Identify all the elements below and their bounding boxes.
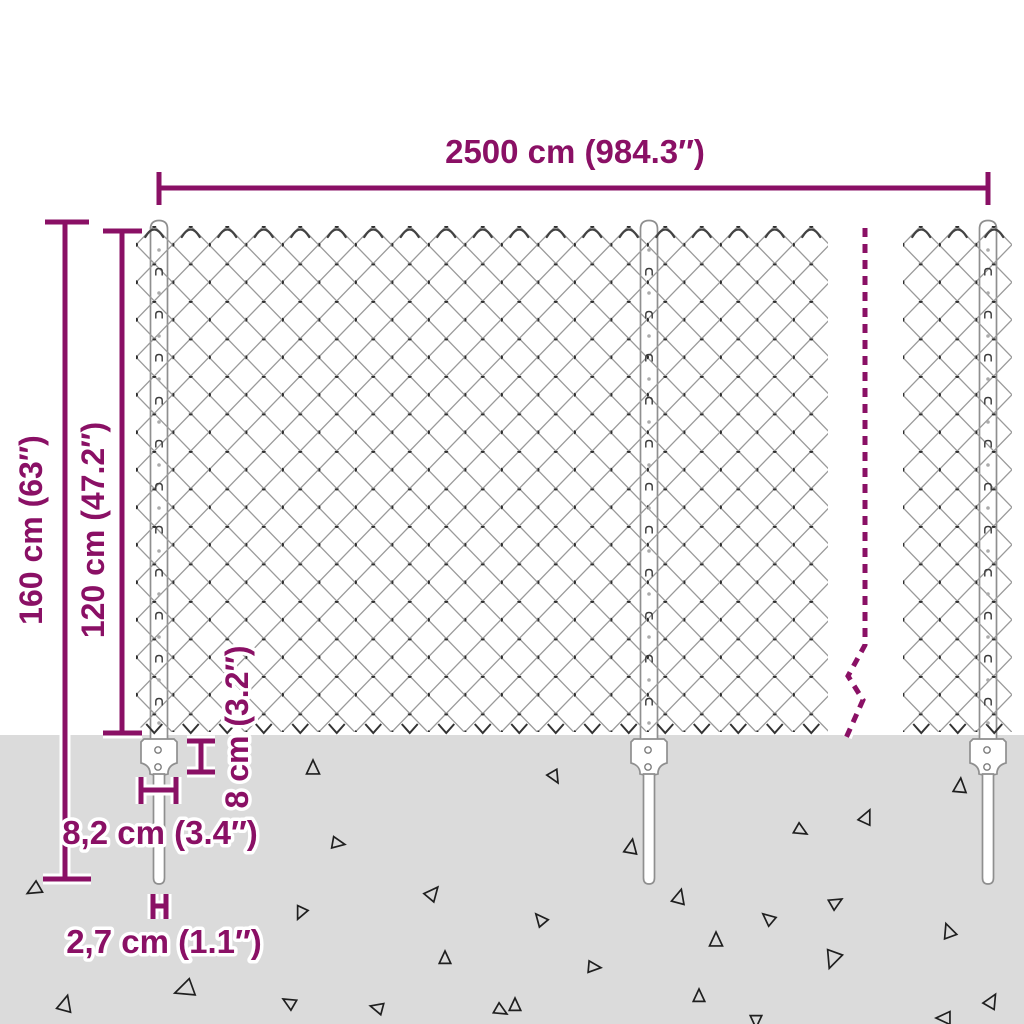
bracket-screw-hole — [645, 764, 651, 770]
total-height-dimension-label: 160 cm (63″) — [13, 435, 49, 625]
post-pin — [157, 678, 161, 682]
width-dimension-label: 2500 cm (984.3″) — [445, 133, 705, 170]
post-pin — [157, 334, 161, 338]
bracket-screw-hole — [155, 747, 161, 753]
post-pin — [986, 463, 990, 467]
post-pin — [647, 420, 651, 424]
post-pin — [986, 592, 990, 596]
bracket-screw-hole — [645, 747, 651, 753]
post-pin — [986, 678, 990, 682]
post-pin — [157, 549, 161, 553]
bracket-screw-hole — [984, 764, 990, 770]
post-pin — [157, 420, 161, 424]
post-pin — [157, 635, 161, 639]
post-pin — [647, 334, 651, 338]
diagram-scene: 2500 cm (984.3″) 160 cm (63″) 120 cm (47… — [0, 0, 1024, 1024]
post-pin — [647, 635, 651, 639]
post-pin — [986, 549, 990, 553]
post-pin — [157, 506, 161, 510]
post-pin — [647, 549, 651, 553]
chain-link-mesh — [136, 226, 1012, 733]
post-pin — [986, 334, 990, 338]
post-pin — [157, 592, 161, 596]
post-pin — [986, 248, 990, 252]
mesh-section-right — [903, 226, 1012, 732]
post-pin — [157, 463, 161, 467]
bracket-screw-hole — [984, 747, 990, 753]
anchor-height-dimension-label: 8 cm (3.2″) — [219, 646, 255, 809]
post-pin — [986, 506, 990, 510]
post-pin — [647, 463, 651, 467]
post-pin — [647, 506, 651, 510]
post-pin — [647, 678, 651, 682]
post-pin — [647, 291, 651, 295]
post-pin — [647, 248, 651, 252]
post-pin — [647, 377, 651, 381]
post-pin — [647, 721, 651, 725]
post-pin — [986, 377, 990, 381]
fence-dimension-diagram: 2500 cm (984.3″) 160 cm (63″) 120 cm (47… — [0, 0, 1024, 1024]
post-pin — [647, 592, 651, 596]
post-pin — [986, 420, 990, 424]
post-pin — [157, 291, 161, 295]
post-diameter-dimension-label: 2,7 cm (1.1″) — [66, 923, 262, 960]
post-pin — [986, 291, 990, 295]
mesh-height-dimension-label: 120 cm (47.2″) — [75, 422, 111, 638]
post-pin — [157, 721, 161, 725]
post-ground-spike — [644, 774, 655, 884]
post-pin — [157, 377, 161, 381]
post-ground-spike — [983, 774, 994, 884]
width-dimension-line — [159, 172, 988, 205]
bracket-screw-hole — [155, 764, 161, 770]
anchor-width-dimension-label: 8,2 cm (3.4″) — [62, 814, 258, 851]
post-pin — [157, 248, 161, 252]
post-pin — [986, 635, 990, 639]
post-pin — [986, 721, 990, 725]
